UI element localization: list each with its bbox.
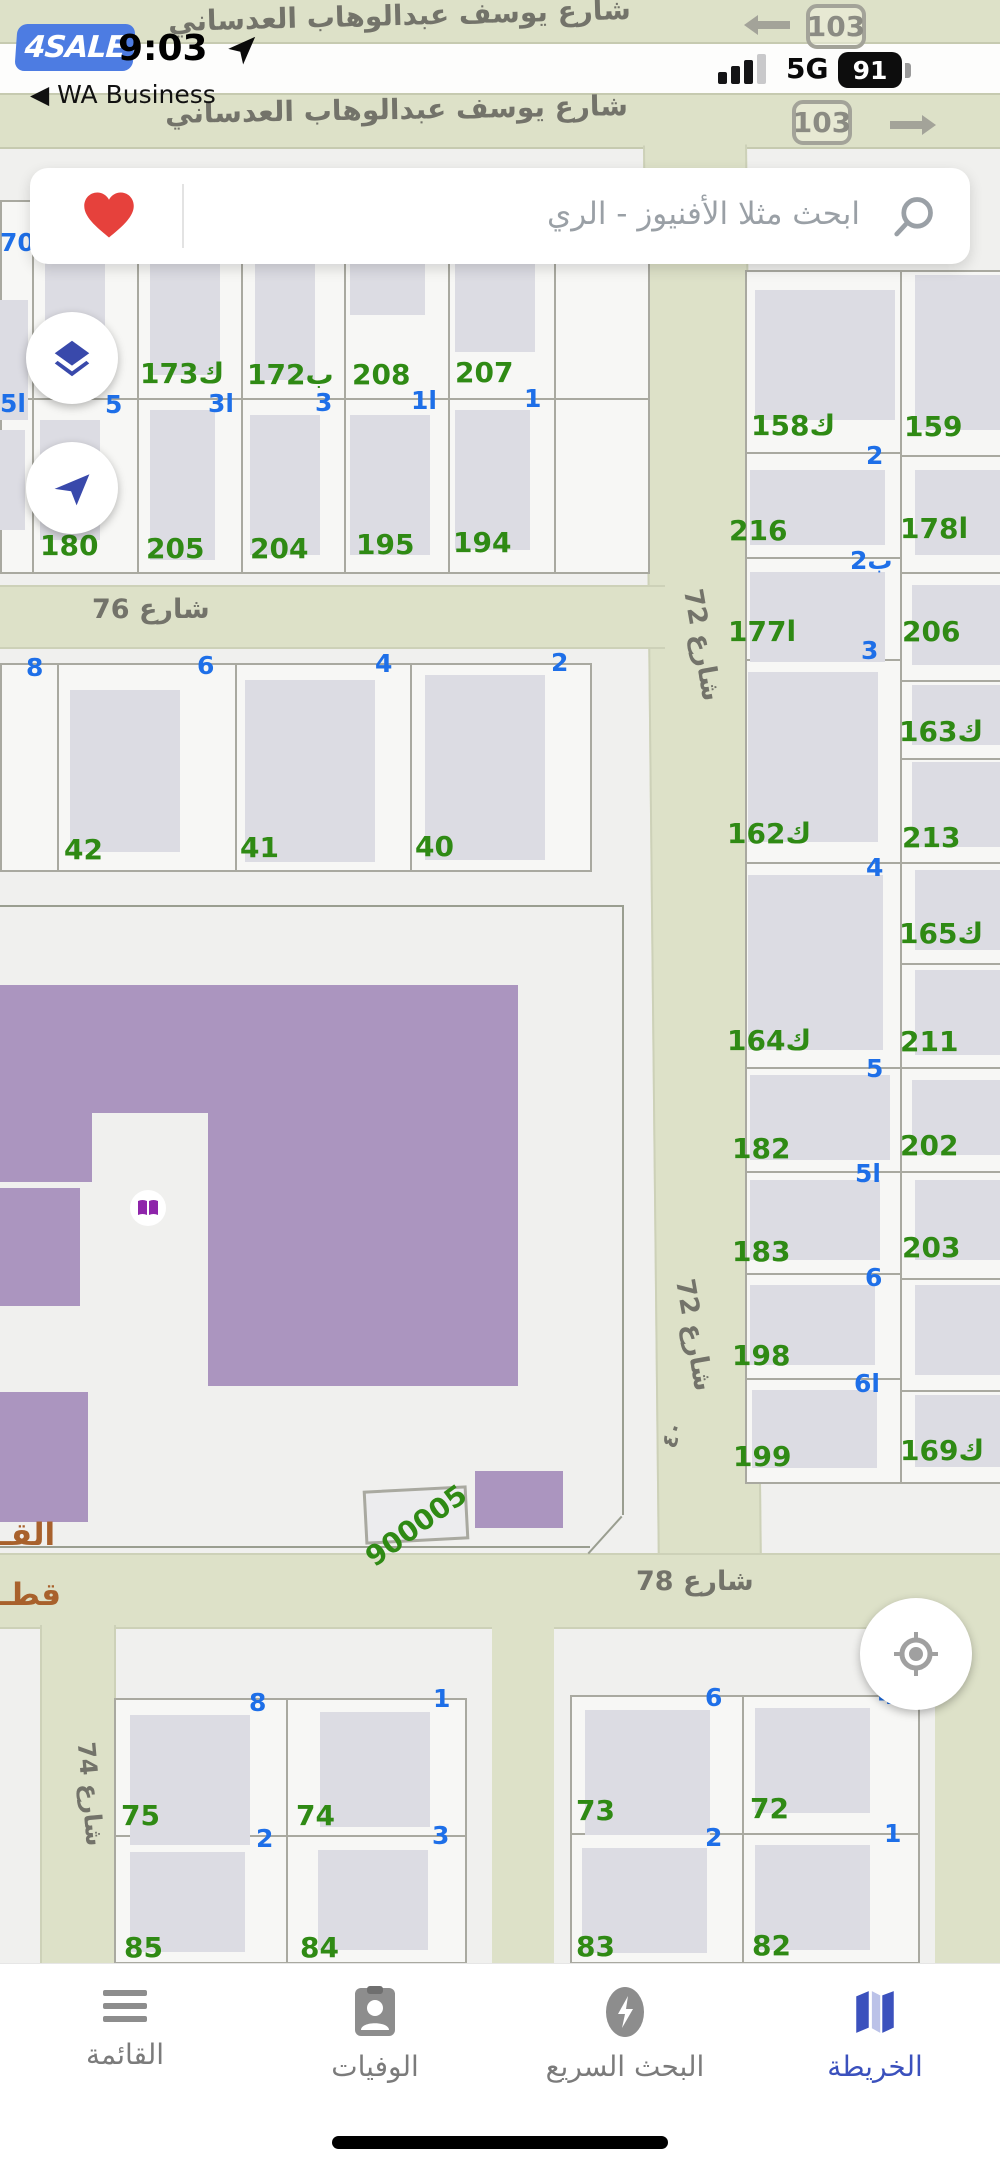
tab-map-label: الخريطة xyxy=(827,2050,923,2083)
plot-number-label: 198 xyxy=(732,1342,790,1370)
my-location-arrow-button[interactable] xyxy=(26,442,118,534)
plot-number-label: 41 xyxy=(240,834,279,862)
favorites-button[interactable] xyxy=(82,190,138,242)
lot-number-label: 5ا xyxy=(855,1161,881,1186)
back-to-app-link[interactable]: ◀ WA Business xyxy=(30,80,216,109)
tab-menu-label: القائمة xyxy=(86,2038,164,2071)
plot-number-label: 84 xyxy=(300,1934,339,1962)
lot-number-label: 2 xyxy=(256,1826,273,1851)
search-divider xyxy=(182,184,184,248)
map-icon xyxy=(850,1986,900,2038)
search-icon xyxy=(892,194,936,238)
street-name-label: شارع 72 xyxy=(671,1277,716,1393)
crosshair-icon xyxy=(887,1625,945,1683)
plot-number-label: 74 xyxy=(296,1802,335,1830)
tab-menu[interactable]: القائمة xyxy=(0,1964,250,2167)
lot-number-label: 5 xyxy=(105,392,122,417)
plot-number-label: 172ب xyxy=(247,361,334,389)
plot-number-label: 178ا xyxy=(900,515,968,543)
plot-number-label: 208 xyxy=(352,361,410,389)
plot-number-label: 206 xyxy=(902,618,960,646)
plot-number-label: 180 xyxy=(40,532,98,560)
plot-number-label: 165ك xyxy=(899,920,983,948)
plot-number-label: 72 xyxy=(750,1795,789,1823)
tab-quick-search-label: البحث السريع xyxy=(546,2050,705,2083)
lot-number-label: 2 xyxy=(866,443,883,468)
plot-number-label: 158ك xyxy=(751,412,835,440)
signal-bar-1 xyxy=(718,72,727,84)
plot-number-label: 173ك xyxy=(140,360,224,388)
street-name-label: شارع 76 xyxy=(92,596,210,623)
location-services-icon xyxy=(224,34,258,68)
search-input[interactable]: ابحث مثلا الأفنيوز - الري xyxy=(547,196,860,232)
plot-number-label: 75 xyxy=(121,1802,160,1830)
plot-number-label: 204 xyxy=(250,535,308,563)
plot-number-label: 205 xyxy=(146,535,204,563)
labels-layer: 173ك172ب208207180205204195194424140158ك2… xyxy=(0,0,1000,1963)
plot-number-label: 207 xyxy=(455,359,513,387)
lot-number-label: 6 xyxy=(705,1685,722,1710)
search-bar[interactable]: ابحث مثلا الأفنيوز - الري xyxy=(30,168,970,264)
layers-icon xyxy=(49,335,95,381)
district-label: القـ xyxy=(0,1520,55,1551)
plot-number-label: 211 xyxy=(900,1028,958,1056)
tab-map[interactable]: الخريطة xyxy=(750,1964,1000,2167)
plot-number-label: 213 xyxy=(902,824,960,852)
status-time: 9:03 xyxy=(118,28,208,69)
plot-number-label: 164ك xyxy=(727,1027,811,1055)
lot-number-label: 8 xyxy=(249,1690,266,1715)
street-name-label: شارع 78 xyxy=(636,1568,754,1595)
plot-number-label: 183 xyxy=(732,1238,790,1266)
plot-number-label: 216 xyxy=(729,517,787,545)
lot-number-label: 3 xyxy=(432,1823,449,1848)
plot-number-label: 73 xyxy=(576,1797,615,1825)
plot-number-label: 199 xyxy=(733,1443,791,1471)
plot-number-label: 203 xyxy=(902,1234,960,1262)
plot-number-label: 159 xyxy=(904,413,962,441)
lot-number-label: 2 xyxy=(551,650,568,675)
home-indicator[interactable] xyxy=(332,2136,668,2149)
lot-number-label: 6ا xyxy=(854,1371,880,1396)
map-canvas[interactable]: 103 103 173ك172ب208207180205204195194424… xyxy=(0,0,1000,1963)
network-type: 5G xyxy=(786,52,828,85)
lot-number-label: 3ا xyxy=(208,391,234,416)
lot-number-label: 1 xyxy=(884,1821,901,1846)
plot-number-label: 163ك xyxy=(899,718,983,746)
plot-number-label: 169ك xyxy=(900,1437,984,1465)
lightning-icon xyxy=(601,1986,649,2038)
status-bar: 4SALE 9:03 ◀ WA Business 5G 91 xyxy=(0,0,1000,115)
battery-indicator: 91 xyxy=(838,52,902,88)
lot-number-label: 2ب xyxy=(850,548,893,573)
street-name-label: شارع 72 xyxy=(679,587,724,703)
plot-number-label: 177ا xyxy=(728,618,796,646)
lot-number-label: 1 xyxy=(524,386,541,411)
contact-card-icon xyxy=(353,1986,397,2038)
lot-number-label: 8 xyxy=(26,655,43,680)
plot-number-label: 195 xyxy=(356,531,414,559)
lot-number-label: 3 xyxy=(315,390,332,415)
plot-number-label: 82 xyxy=(752,1932,791,1960)
plot-number-label: 85 xyxy=(124,1934,163,1962)
plot-number-label: 900005 xyxy=(361,1480,472,1571)
plot-number-label: 40 xyxy=(415,833,454,861)
navigation-arrow-icon xyxy=(50,466,94,510)
district-label: قطـ xyxy=(0,1580,61,1611)
lot-number-label: 3 xyxy=(861,638,878,663)
lot-number-label: 5 xyxy=(866,1056,883,1081)
plot-number-label: 194 xyxy=(453,529,511,557)
street-name-label: شارع 74 xyxy=(74,1741,107,1847)
signal-bar-4 xyxy=(757,54,766,84)
layers-button[interactable] xyxy=(26,312,118,404)
battery-nub xyxy=(905,63,911,78)
hamburger-icon xyxy=(101,1986,149,2026)
lot-number-label: 1 xyxy=(433,1686,450,1711)
plot-number-label: 182 xyxy=(732,1135,790,1163)
lot-number-label: 4 xyxy=(866,855,883,880)
lot-number-label: 6 xyxy=(197,653,214,678)
lot-number-label: 5ا xyxy=(0,391,26,416)
lot-number-label: 2 xyxy=(705,1825,722,1850)
street-name-label: ٤٠ xyxy=(659,1419,688,1451)
lot-number-label: 4 xyxy=(375,651,392,676)
lot-number-label: 1ا xyxy=(411,388,437,413)
heart-icon xyxy=(82,190,136,240)
plot-number-label: 83 xyxy=(576,1933,615,1961)
tab-obituaries-label: الوفيات xyxy=(331,2050,419,2083)
signal-bar-2 xyxy=(731,66,740,84)
signal-bar-3 xyxy=(744,60,753,84)
plot-number-label: 42 xyxy=(64,836,103,864)
locate-me-button[interactable] xyxy=(860,1598,972,1710)
app-screen: 103 103 173ك172ب208207180205204195194424… xyxy=(0,0,1000,2167)
plot-number-label: 202 xyxy=(900,1132,958,1160)
plot-number-label: 162ك xyxy=(727,820,811,848)
lot-number-label: 6 xyxy=(865,1265,882,1290)
